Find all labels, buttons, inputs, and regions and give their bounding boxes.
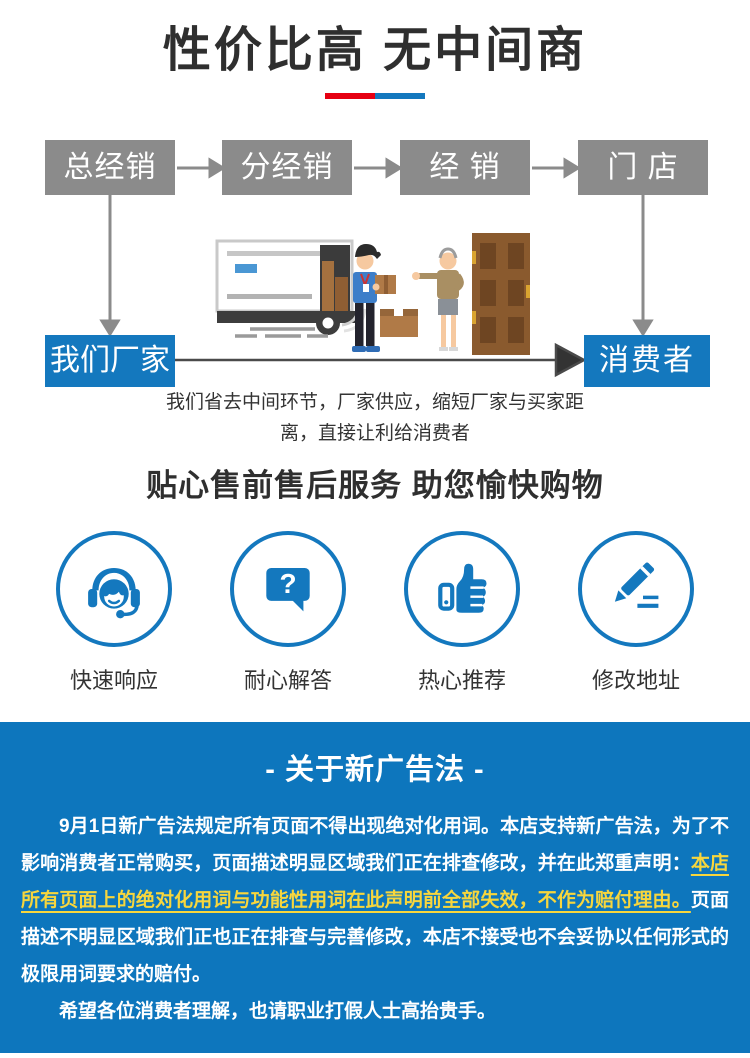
caption-line-1: 我们省去中间环节，厂家供应，缩短厂家与买家距 [166,392,584,413]
page-title: 性价比高 无中间商 [0,22,750,80]
flow-box-sub-distributor: 分经销 [222,140,352,195]
delivery-illustration [195,223,540,375]
flow-box-dealer: 经 销 [400,140,530,195]
ad-law-notice: - 关于新广告法 - 9月1日新广告法规定所有页面不得出现绝对化用词。本店支持新… [0,722,750,1053]
title-underline [325,93,425,99]
door-icon [472,233,530,355]
service-row: 快速响应 ? 耐心解答 热心推荐 [39,531,711,695]
truck-icon [217,241,365,336]
headset-icon [56,531,172,647]
services-title: 贴心售前售后服务 助您愉快购物 [0,460,750,505]
flow-box-general-distributor: 总经销 [45,140,175,195]
notice-title: - 关于新广告法 - [21,746,729,788]
notice-paragraph-1: 9月1日新广告法规定所有页面不得出现绝对化用词。本店支持新广告法，为了不影响消费… [21,808,729,993]
distribution-flow-diagram: 总经销 分经销 经 销 门 店 [0,130,750,448]
service-label: 耐心解答 [213,663,363,695]
service-label: 热心推荐 [387,663,537,695]
underline-red-segment [325,93,375,99]
parcel-box-icon [380,309,418,337]
services-section: 贴心售前售后服务 助您愉快购物 快速响应 [0,448,750,695]
question-bubble-icon: ? [230,531,346,647]
flow-box-store: 门 店 [578,140,708,195]
notice-text-1: 9月1日新广告法规定所有页面不得出现绝对化用词。本店支持新广告法，为了不影响消费… [21,816,729,874]
service-item-fast-response: 快速响应 [39,531,189,695]
service-item-patient-answer: ? 耐心解答 [213,531,363,695]
pencil-edit-icon [578,531,694,647]
service-label: 快速响应 [39,663,189,695]
question-mark: ? [279,568,296,599]
service-item-recommend: 热心推荐 [387,531,537,695]
diagram-caption: 我们省去中间环节，厂家供应，缩短厂家与买家距 离，直接让利给消费者 [135,387,615,449]
notice-paragraph-2: 希望各位消费者理解，也请职业打假人士高抬贵手。 [21,993,729,1030]
caption-line-2: 离，直接让利给消费者 [280,423,470,444]
consumer-box: 消费者 [584,335,710,387]
customer-figure [412,249,461,351]
factory-box: 我们厂家 [45,335,175,387]
courier-figure [352,244,396,352]
service-label: 修改地址 [561,663,711,695]
service-item-edit-address: 修改地址 [561,531,711,695]
underline-blue-segment [375,93,425,99]
thumbs-up-icon [404,531,520,647]
header: 性价比高 无中间商 [0,0,750,130]
